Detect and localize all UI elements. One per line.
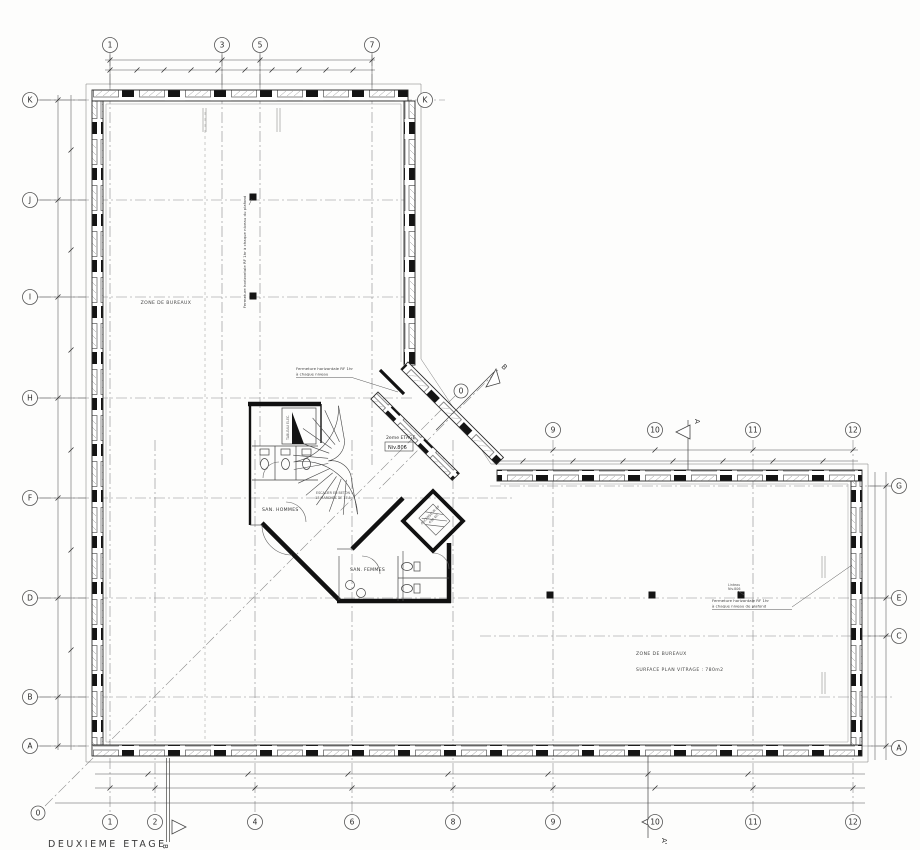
svg-text:G: G — [896, 482, 902, 491]
svg-text:Fermeture horizontale RF 1hr: Fermeture horizontale RF 1hr — [296, 366, 353, 371]
svg-text:Fermeture horizontale RF 1hr à: Fermeture horizontale RF 1hr à chaque ni… — [242, 195, 247, 308]
level-box: Niv.806 — [385, 442, 413, 451]
column-markers — [250, 194, 745, 599]
svg-text:1: 1 — [108, 818, 113, 827]
svg-text:à chaque niveau de plafond: à chaque niveau de plafond — [712, 604, 767, 609]
facade-left — [92, 101, 103, 745]
svg-text:D: D — [27, 594, 33, 603]
zone-bureaux-right: ZONE DE BUREAUX — [636, 651, 687, 657]
stair-sublabel: 18 MARCHES DE 17.5 — [315, 496, 351, 500]
san-hommes-label: SAN. HOMMES — [262, 507, 299, 513]
note-fermeture-vertical: Fermeture horizontale RF 1hr à chaque ni… — [242, 195, 252, 308]
level-value: Niv.806 — [388, 445, 407, 451]
svg-text:8: 8 — [451, 818, 456, 827]
svg-text:10: 10 — [650, 818, 660, 827]
svg-text:7: 7 — [370, 41, 375, 50]
dimension-ticks — [56, 58, 889, 791]
svg-text:11: 11 — [748, 818, 758, 827]
corridor-wall-upper — [401, 362, 504, 465]
san-femmes-label: SAN. FEMMES — [350, 567, 385, 573]
shaft-poche — [292, 412, 304, 444]
svg-text:0: 0 — [36, 808, 41, 817]
svg-text:1: 1 — [108, 41, 113, 50]
door-swings — [262, 462, 449, 574]
svg-text:11: 11 — [748, 426, 758, 435]
surface-vitrage-label: SURFACE PLAN VITRAGE : 780m2 — [636, 667, 723, 673]
svg-text:Niv.806: Niv.806 — [728, 587, 740, 591]
section-a-triangle — [676, 425, 690, 439]
facade-right-wing-top — [497, 470, 862, 481]
svg-text:B: B — [27, 693, 32, 702]
svg-text:4: 4 — [253, 818, 258, 827]
svg-text:5: 5 — [258, 41, 263, 50]
grid-bubble-labels: 1 3 5 7 K K J I H F D B A G E C A 9 10 1… — [27, 41, 902, 827]
svg-text:A: A — [27, 742, 33, 751]
level-label: 2eme ETAGE — [386, 435, 415, 441]
svg-text:9: 9 — [551, 426, 556, 435]
svg-text:12: 12 — [848, 426, 858, 435]
stair-label: ESCALIER EN BETON — [316, 491, 351, 495]
section-a-prime-label: A' — [660, 838, 668, 845]
svg-text:J: J — [28, 196, 31, 205]
svg-text:2: 2 — [153, 818, 158, 827]
glazed-facade-walls — [92, 90, 862, 756]
wc-stalls — [252, 446, 318, 480]
facade-bottom — [92, 745, 862, 756]
facade-top — [92, 90, 408, 101]
section-b-label: B — [500, 363, 509, 372]
section-b-prime-triangle — [172, 820, 186, 834]
svg-text:H: H — [27, 394, 33, 403]
floor-plan-sheet: TABLEAU ELEC. A A' — [0, 0, 920, 850]
wc-fixtures-femmes — [346, 556, 450, 601]
electrical-closet: TABLEAU ELEC. — [282, 408, 316, 444]
section-a-label: A — [693, 419, 701, 424]
plan-drawing: TABLEAU ELEC. A A' — [0, 0, 920, 850]
svg-text:0: 0 — [459, 386, 464, 395]
svg-text:F: F — [28, 494, 32, 503]
svg-text:à chaque niveau: à chaque niveau — [296, 372, 329, 377]
facade-right — [851, 481, 862, 745]
svg-text:9: 9 — [551, 818, 556, 827]
drawing-title: DEUXIEME ETAGE — [48, 839, 167, 850]
note-linteau: Linteau Niv.806 — [728, 583, 744, 595]
svg-text:E: E — [897, 594, 902, 603]
svg-text:Fermeture horizontale RF 1hr: Fermeture horizontale RF 1hr — [712, 598, 769, 603]
svg-text:10: 10 — [650, 426, 660, 435]
svg-text:12: 12 — [848, 818, 858, 827]
svg-text:A: A — [896, 744, 902, 753]
svg-text:C: C — [896, 632, 901, 641]
svg-text:I: I — [29, 293, 31, 302]
tableau-elec-label: TABLEAU ELEC. — [286, 415, 290, 441]
note-fermeture-top: Fermeture horizontale RF 1hr à chaque ni… — [296, 366, 398, 392]
facade-wing-right — [404, 101, 415, 365]
svg-text:3: 3 — [220, 41, 225, 50]
svg-text:6: 6 — [350, 818, 355, 827]
zone-bureaux-left: ZONE DE BUREAUX — [141, 300, 192, 306]
